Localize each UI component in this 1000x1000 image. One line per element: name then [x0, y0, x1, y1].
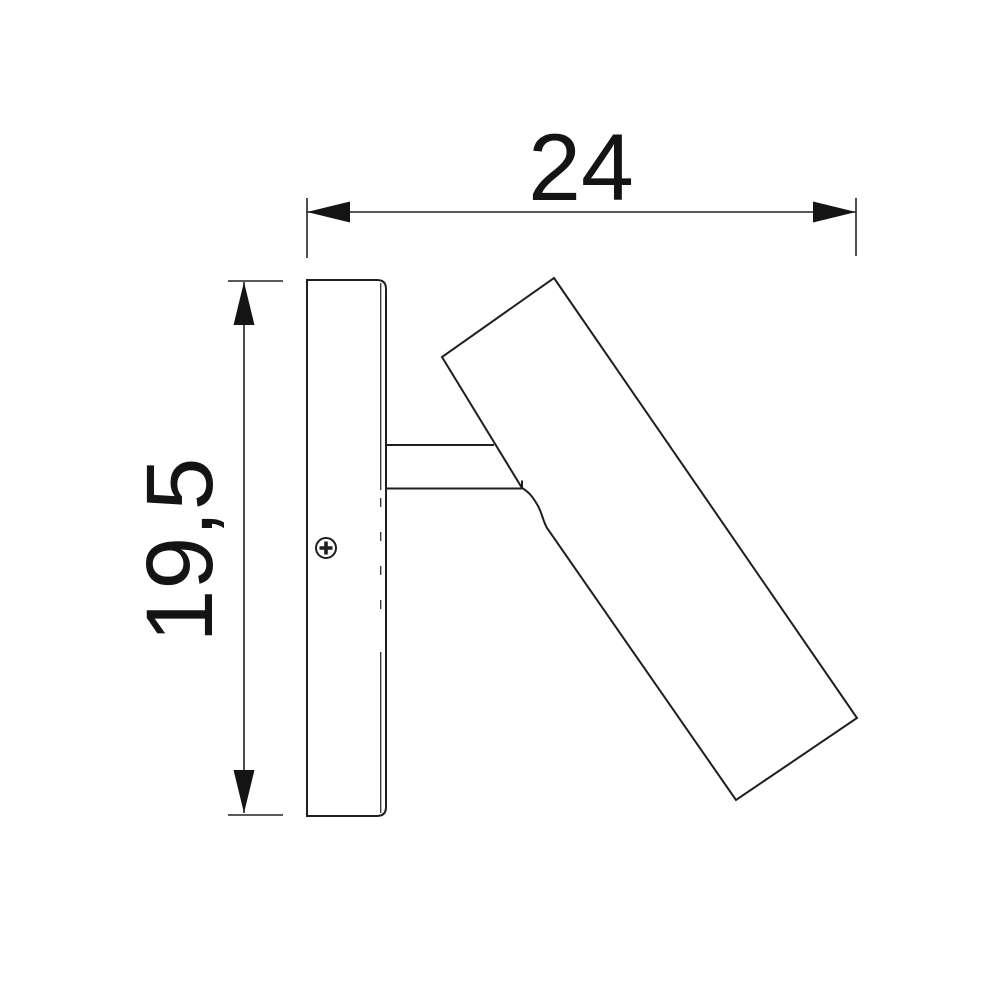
height-dimension-label: 19,5	[127, 458, 233, 643]
wall-spotlight-side-view-drawing: 24 19,5	[0, 0, 1000, 1000]
width-dimension: 24	[307, 115, 856, 258]
wall-plate-outline	[307, 280, 386, 816]
wall-plate	[307, 280, 386, 816]
arrow-down-icon	[234, 770, 255, 813]
spotlight-head	[442, 278, 857, 800]
technical-drawing-page: 24 19,5	[0, 0, 1000, 1000]
arrow-left-icon	[307, 202, 350, 223]
arrow-up-icon	[234, 282, 255, 325]
height-dimension: 19,5	[127, 281, 283, 815]
arrow-right-icon	[813, 202, 856, 223]
mounting-arm-front	[386, 481, 522, 490]
width-dimension-label: 24	[528, 115, 634, 221]
